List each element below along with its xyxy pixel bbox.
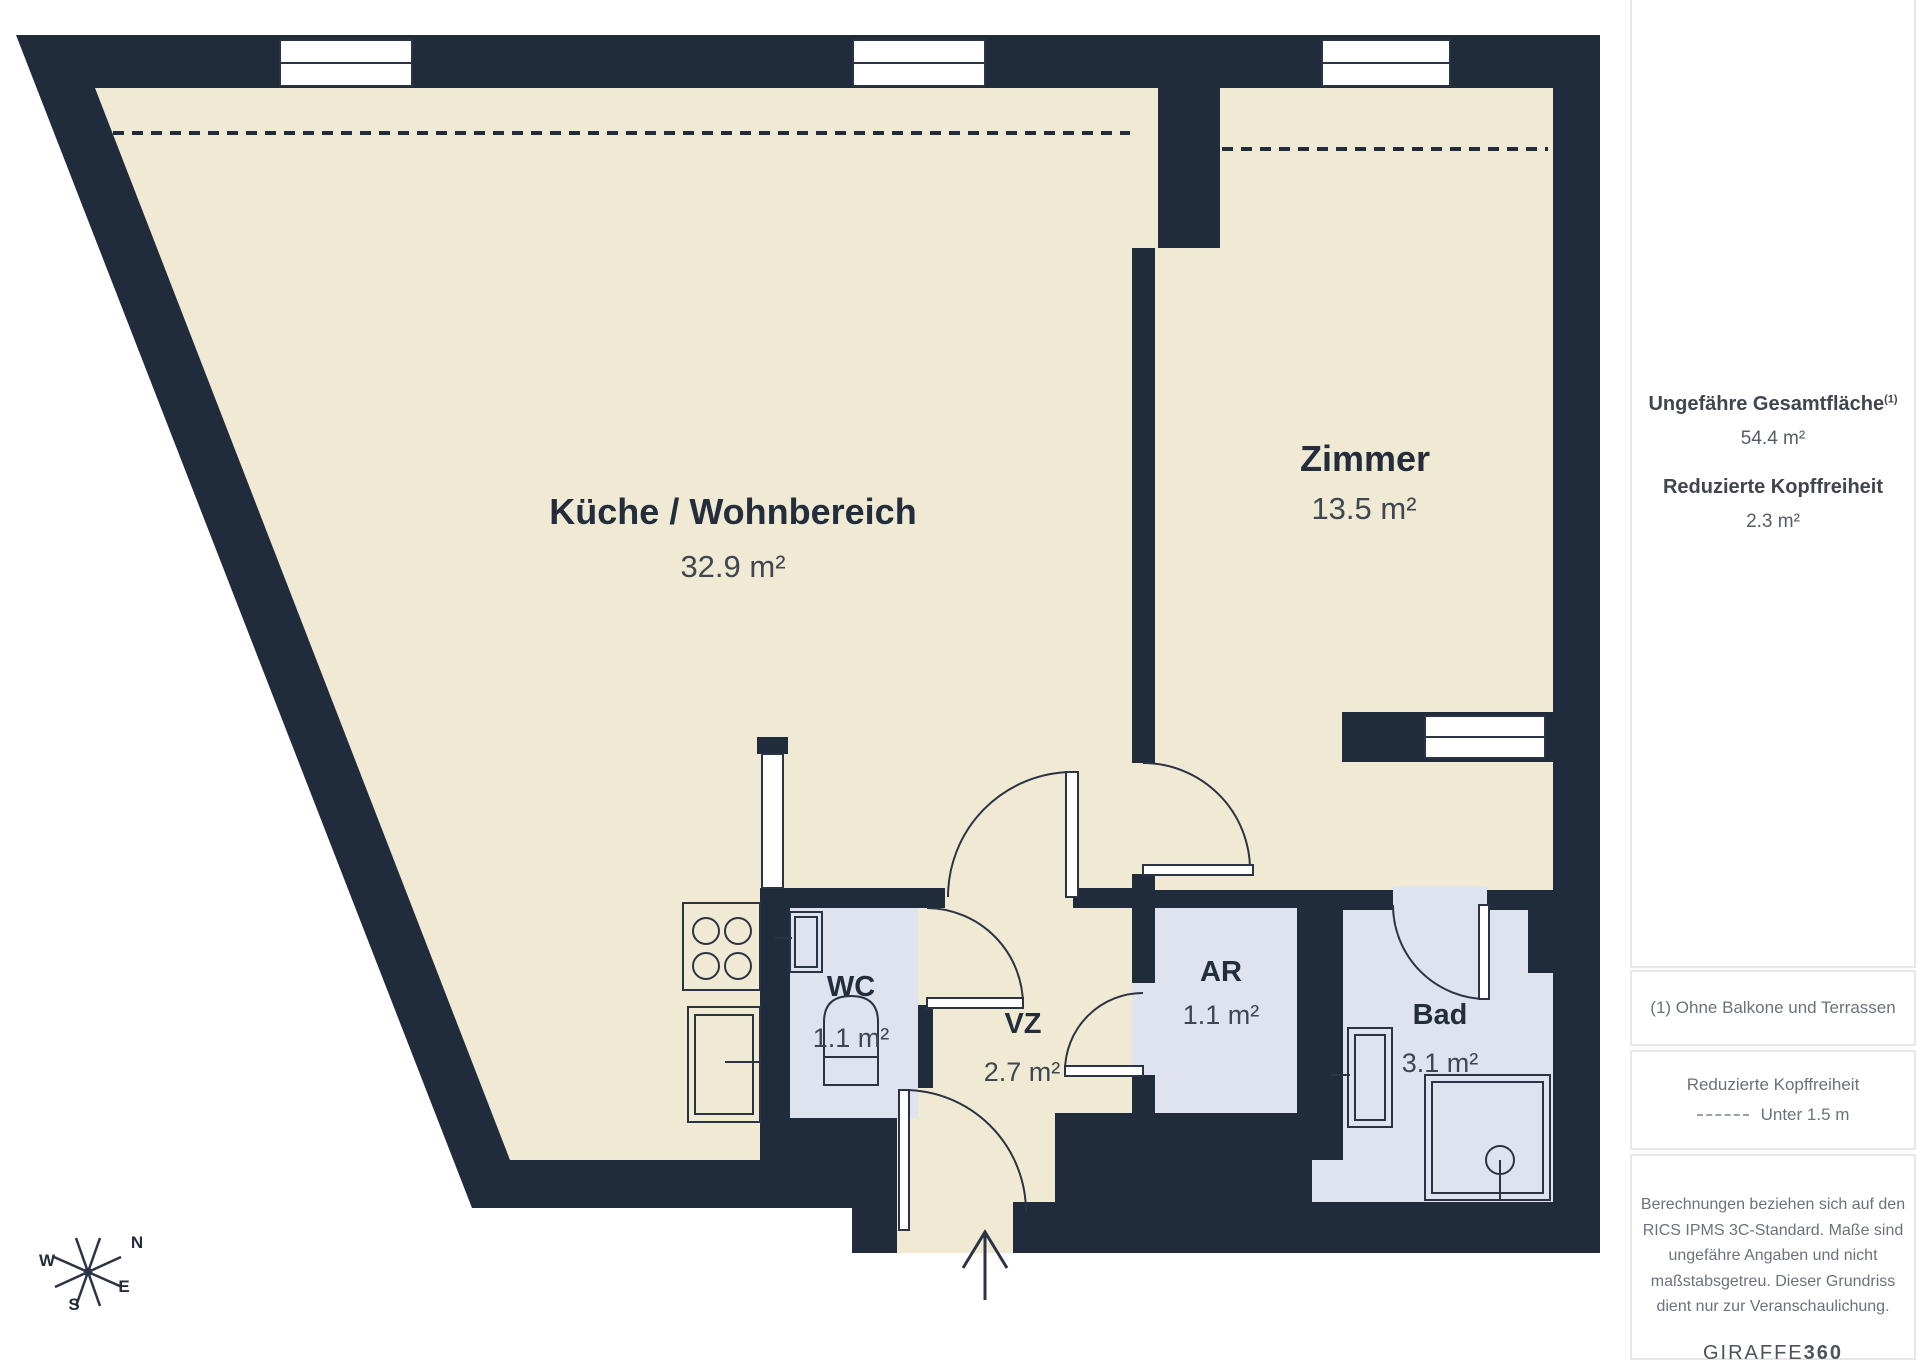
total-area-heading: Ungefähre Gesamtfläche(1) — [1632, 393, 1914, 416]
disclaimer-text: Berechnungen beziehen sich auf den RICS … — [1640, 1192, 1906, 1320]
room-bad-label: Bad — [1413, 999, 1468, 1031]
room-vz-label: VZ — [1004, 1008, 1041, 1040]
reduced-headroom-value: 2.3 m² — [1632, 511, 1914, 533]
compass-w: W — [39, 1251, 56, 1270]
room-vz-area: 2.7 m² — [984, 1057, 1061, 1087]
room-wc-label: WC — [827, 971, 875, 1003]
brand-logo: GIRAFFE360 — [1632, 1342, 1914, 1365]
room-zimmer-label: Zimmer — [1300, 438, 1430, 479]
doorway-kueche-vz — [945, 884, 1073, 912]
room-ar-label: AR — [1200, 956, 1242, 988]
compass-e: E — [118, 1277, 129, 1296]
bad-wall-notch — [1528, 910, 1553, 973]
window-top-middle — [853, 40, 985, 86]
doorway-zimmer — [1128, 763, 1159, 874]
total-area-value: 54.4 m² — [1632, 428, 1914, 450]
window-top-right — [1322, 40, 1450, 86]
room-wc-area: 1.1 m² — [813, 1023, 890, 1053]
window-top-left — [280, 40, 412, 86]
sidebar-footnote-card: (1) Ohne Balkone und Terrassen — [1630, 970, 1916, 1046]
reduced-headroom-heading: Reduzierte Kopffreiheit — [1632, 476, 1914, 499]
room-ar-area: 1.1 m² — [1183, 1000, 1260, 1030]
footnote-text: (1) Ohne Balkone und Terrassen — [1650, 998, 1895, 1018]
compass-s: S — [68, 1295, 79, 1314]
room-wc-floor — [790, 908, 918, 1118]
compass-n: N — [131, 1233, 143, 1252]
room-kueche-label: Küche / Wohnbereich — [549, 491, 916, 532]
sidebar-summary-card: Ungefähre Gesamtfläche(1) 54.4 m² Reduzi… — [1630, 0, 1916, 968]
doorway-bad — [1393, 886, 1487, 912]
compass-icon — [54, 1238, 122, 1306]
dashed-line-legend-icon — [1697, 1114, 1749, 1116]
room-bad-floor-extension — [1312, 1160, 1343, 1202]
floor-plan: Küche / Wohnbereich 32.9 m² Zimmer 13.5 … — [0, 0, 1628, 1358]
total-area-footnote-marker: (1) — [1884, 393, 1897, 405]
legend-title: Reduzierte Kopffreiheit — [1687, 1075, 1860, 1095]
legend-value: Unter 1.5 m — [1761, 1105, 1850, 1125]
glass-partition — [757, 737, 788, 888]
room-kueche-area: 32.9 m² — [680, 549, 785, 584]
sidebar-legend-card: Reduzierte Kopffreiheit Unter 1.5 m — [1630, 1050, 1916, 1150]
doorway-wc — [918, 908, 933, 1005]
doorway-ar — [1132, 983, 1158, 1075]
room-zimmer-area: 13.5 m² — [1311, 491, 1416, 526]
room-bad-area: 3.1 m² — [1402, 1048, 1479, 1078]
sidebar-disclaimer-card: Berechnungen beziehen sich auf den RICS … — [1630, 1154, 1916, 1360]
